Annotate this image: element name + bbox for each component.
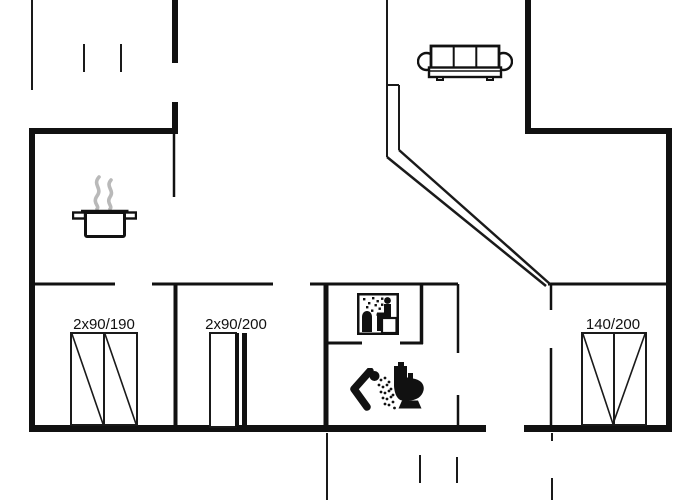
wall-thick (172, 0, 178, 63)
right-window-dimension: 140/200 (586, 316, 640, 333)
labels-layer: 2x90/1902x90/200140/200 (73, 316, 640, 333)
wall-thick (29, 425, 486, 432)
sliding-door-symbol-200-frame (210, 333, 236, 427)
sliding-door-symbol-200-leaf-bar (235, 333, 239, 427)
boundary-line (399, 150, 550, 284)
wall-thick (524, 425, 672, 432)
middle-double-door-dimension: 2x90/200 (205, 316, 267, 333)
cooking-pot-icon (73, 177, 136, 237)
sofa-icon (418, 46, 512, 80)
wall-thick (29, 128, 178, 134)
double-door-symbol-190 (71, 333, 137, 425)
wall-thick (525, 128, 672, 134)
wall-thick (666, 128, 672, 432)
wall-thick (525, 0, 531, 134)
sauna-icon (358, 294, 398, 334)
shower-icon (354, 371, 396, 409)
toilet-icon (394, 362, 424, 409)
sliding-door-symbol-200-leaf-bar (242, 333, 247, 427)
boundary-line (387, 157, 546, 286)
floor-plan-page: 2x90/1902x90/200140/200 (0, 0, 700, 500)
left-double-door-dimension: 2x90/190 (73, 316, 135, 333)
sliding-door-symbol-200 (210, 333, 247, 427)
wall-thick (172, 102, 178, 134)
icons-layer (73, 46, 512, 409)
floorplan-svg: 2x90/1902x90/200140/200 (0, 0, 700, 500)
wall-thick (29, 128, 35, 432)
window-symbol-140 (582, 333, 646, 425)
